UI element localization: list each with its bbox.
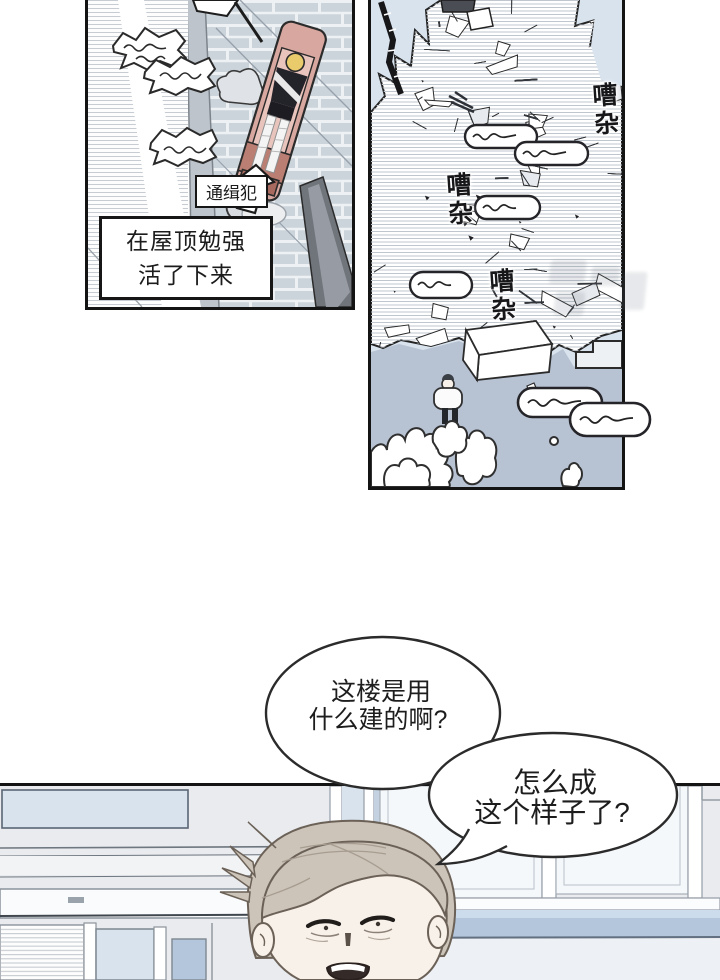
- man-ear-right: [428, 916, 448, 948]
- speech-bubbles: 这楼是用 什么建的啊? 怎么成 这个样子了?: [255, 630, 685, 875]
- counter-handle: [68, 897, 84, 903]
- bubble1-line1: 这楼是用: [331, 678, 431, 706]
- sfx-noise-1: 嘈杂: [584, 81, 624, 139]
- comic-page: 通缉犯 在屋顶勉强 活了下来: [0, 0, 720, 980]
- man-ear-left: [252, 923, 274, 957]
- watermark: [545, 260, 649, 316]
- bubble1-line2: 什么建的啊?: [309, 706, 448, 734]
- speech-bubble-2: 怎么成 这个样子了?: [429, 733, 677, 864]
- murmur-bubbles-outer: [518, 388, 650, 436]
- arrow-label: 通缉犯: [195, 175, 268, 208]
- man-mouth: [327, 963, 369, 980]
- man-nose: [345, 933, 351, 946]
- caption-box: 在屋顶勉强 活了下来: [99, 216, 273, 300]
- caption-line2: 活了下来: [138, 258, 234, 293]
- sfx-noise-2: 嘈杂: [438, 171, 478, 229]
- door-glass: [96, 929, 154, 980]
- panel-rooftop-rescue: 通缉犯 在屋顶勉强 活了下来: [85, 0, 355, 310]
- bubble2-line2: 这个样子了?: [474, 797, 630, 828]
- caption-line1: 在屋顶勉强: [126, 224, 246, 259]
- bubble2-line1: 怎么成: [513, 767, 597, 798]
- transom-glass: [2, 790, 188, 828]
- panel2-overlay: [500, 250, 660, 445]
